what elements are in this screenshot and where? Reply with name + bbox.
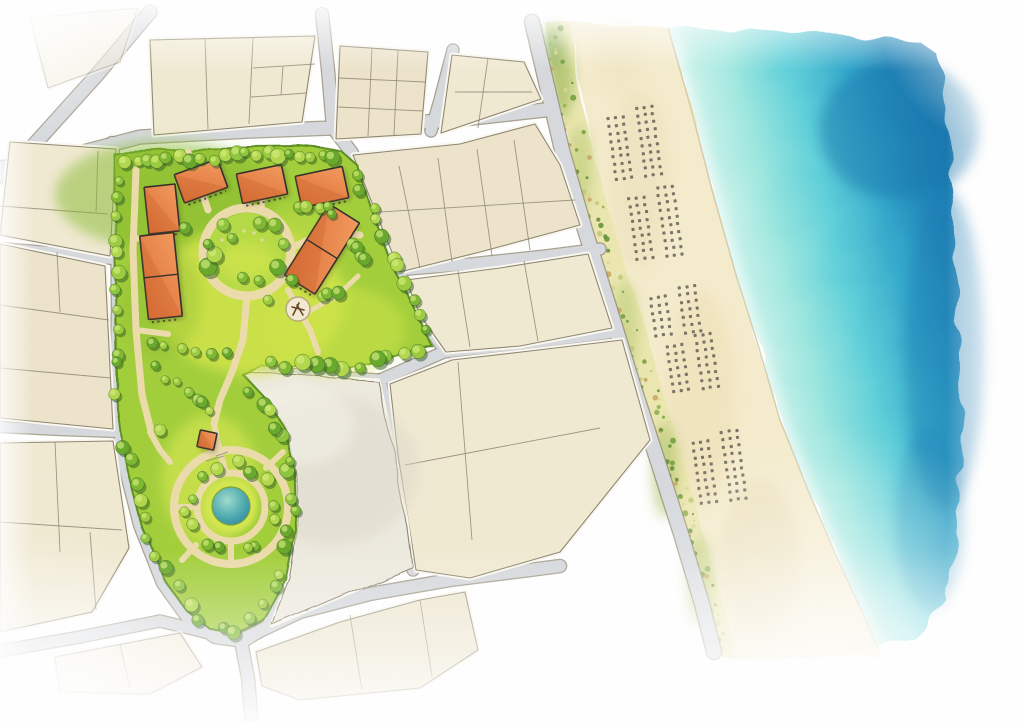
site-plan-canvas xyxy=(0,0,1024,724)
watercolor-vignette xyxy=(0,0,1024,724)
watercolor-masterplan-image xyxy=(0,0,1024,724)
